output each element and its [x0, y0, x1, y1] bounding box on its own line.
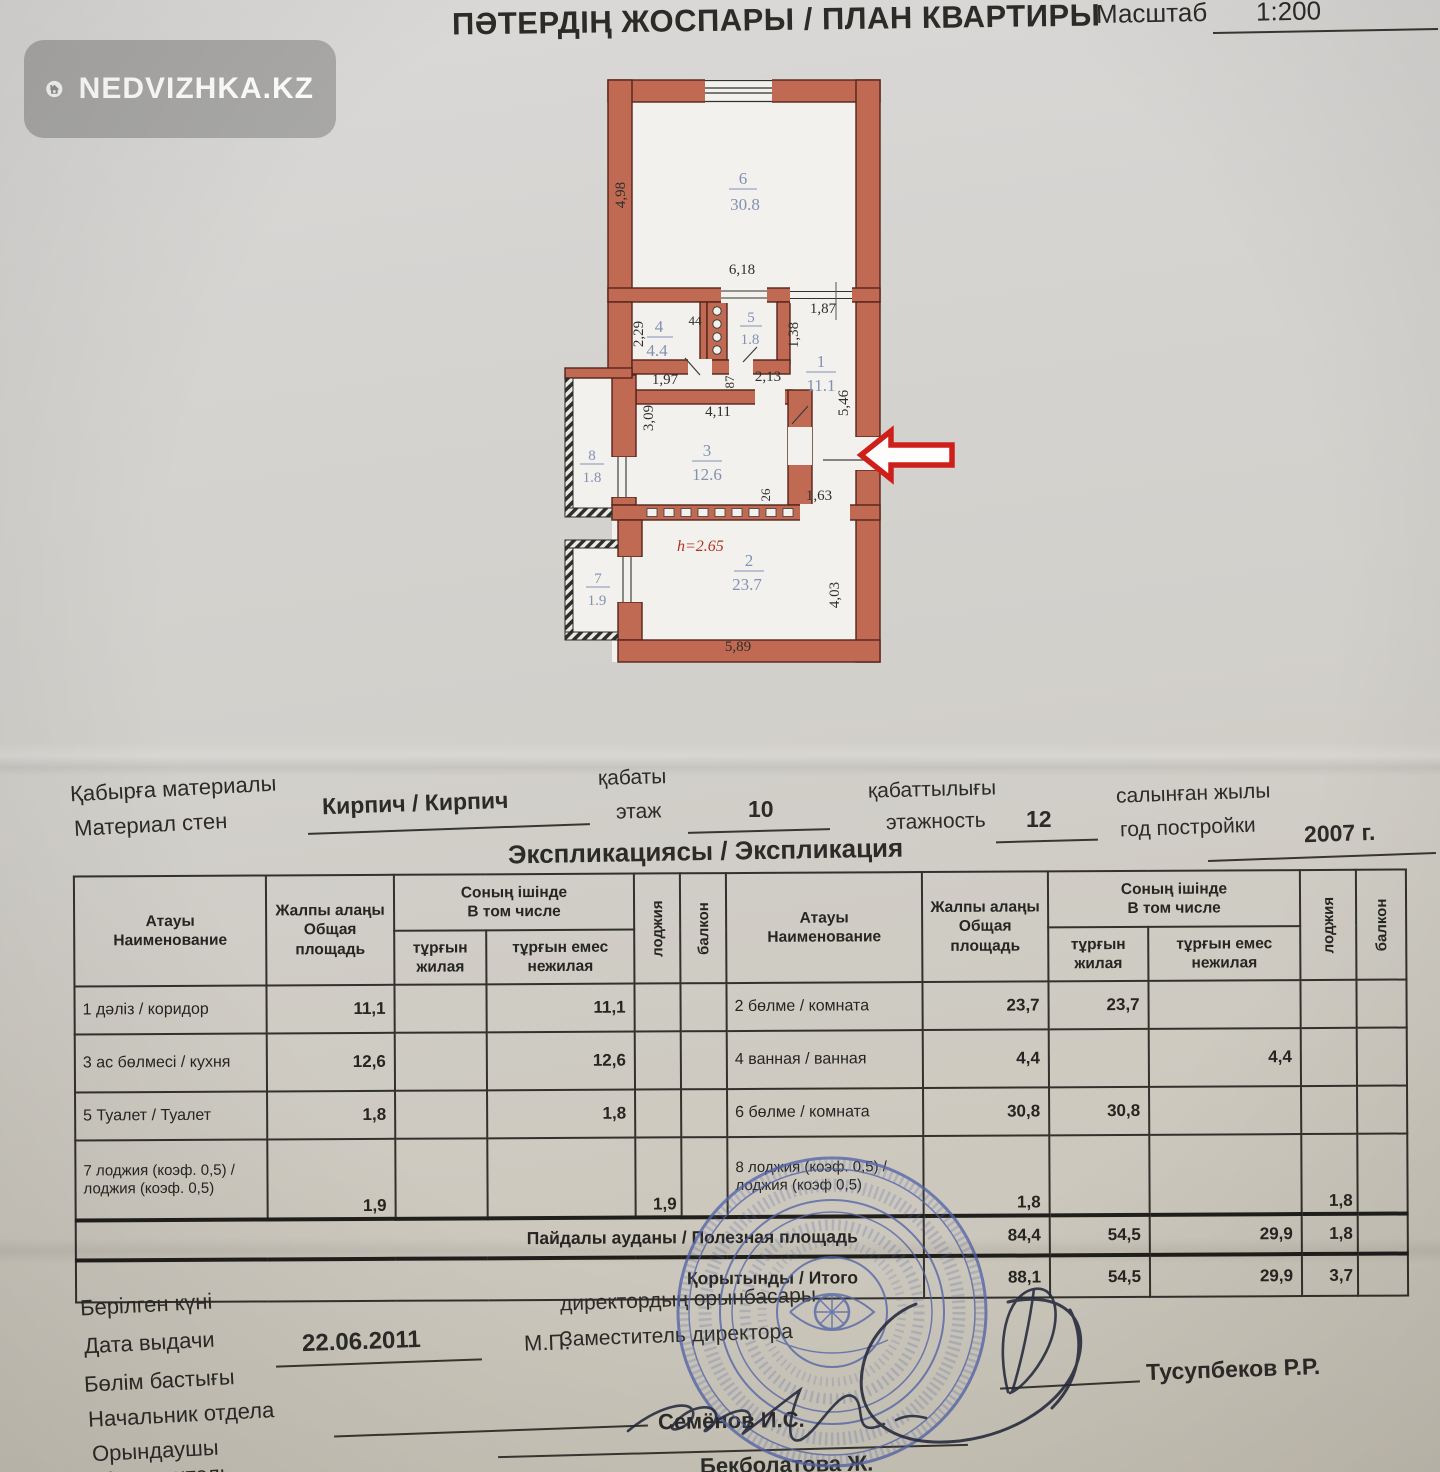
cell-r1-balcony [1357, 1028, 1407, 1086]
header-living-right: тұрғын жилая [1048, 927, 1148, 982]
wall-material-label-kz: Қабырға материалы [69, 771, 276, 808]
glazing-slots [647, 509, 793, 517]
wall-material-underline [308, 823, 590, 835]
year-label-ru: год постройки [1120, 814, 1256, 843]
header-total-kz: Жалпы алаңы [269, 901, 391, 921]
header-balcony-left: балкон [680, 873, 727, 983]
year-value: 2007 г. [1304, 819, 1376, 848]
room6-number: 6 [739, 169, 748, 188]
cell-r2-nonliving [1149, 1086, 1301, 1135]
cell-l0-name: 1 дәліз / коридор [74, 985, 266, 1034]
summary-total-nonliving: 29,9 [1150, 1254, 1302, 1297]
room1-area: 11.1 [806, 376, 835, 395]
cell-l3-nonliving [487, 1138, 635, 1219]
cell-l3-name: 7 лоджия (коэф. 0,5) / лоджия (коэф. 0,5… [75, 1139, 267, 1220]
room2-number: 2 [745, 551, 754, 570]
house-icon [46, 56, 63, 122]
summary-total-balcony [1358, 1254, 1408, 1296]
floor-value: 10 [748, 796, 774, 823]
cell-l1-living [395, 1032, 487, 1090]
header-total-kz: Жалпы алаңы [925, 897, 1045, 917]
head-name: Семёнов И.С. [658, 1407, 805, 1436]
header-incl-kz: Соның ішінде [1051, 879, 1297, 900]
issued-underline [276, 1358, 482, 1367]
summary-useful-loggia: 1,8 [1302, 1214, 1358, 1254]
cell-r0-nonliving [1148, 980, 1300, 1029]
summary-total-loggia: 3,7 [1302, 1254, 1358, 1296]
dim-618: 6,18 [729, 262, 755, 278]
room7-number: 7 [594, 571, 602, 587]
header-name-kz: Атауы [77, 911, 263, 931]
room2-area: 23.7 [732, 575, 762, 594]
year-label-kz: салынған жылы [1116, 779, 1271, 808]
dim-187: 1,87 [810, 301, 837, 317]
header-name-right: Атауы Наименование [726, 872, 923, 983]
cell-l2-balcony [681, 1089, 727, 1137]
summary-row-useful: Пайдалы ауданы / Полезная площадь 84,4 5… [76, 1214, 1408, 1261]
dim-87: 87 [722, 375, 737, 389]
room5-area: 1.8 [741, 332, 760, 348]
cell-r3-living [1049, 1135, 1149, 1216]
header-incl-left: Соның ішінде В том числе [394, 874, 634, 931]
room3-area: 12.6 [692, 465, 722, 484]
header-living-ru: жилая [1051, 954, 1145, 974]
header-total-ru: Общая площадь [925, 917, 1045, 956]
cell-l0-nonliving: 11,1 [486, 984, 634, 1033]
stamp-emblem-icon [815, 1295, 849, 1329]
summary-useful-living: 54,5 [1050, 1215, 1150, 1256]
page-title: ПӘТЕРДІҢ ЖОСПАРЫ / ПЛАН КВАРТИРЫ [452, 0, 1101, 43]
floor-underline [688, 828, 830, 834]
header-nonliving-ru: нежилая [489, 957, 631, 977]
header-loggia-right: лоджия [1300, 870, 1357, 980]
deputy-underline [1000, 1380, 1140, 1389]
cell-r3-loggia: 1,8 [1301, 1134, 1357, 1214]
cell-r3-name: 8 лоджия (коэф. 0,5) / лоджия (коэф 0,5) [727, 1136, 923, 1217]
dim-411: 4,11 [705, 404, 731, 420]
dim-589: 5,89 [725, 639, 751, 655]
cell-r1-total: 4,4 [923, 1029, 1049, 1088]
floors-total-label-kz: қабаттылығы [868, 776, 997, 803]
table-row: 7 лоджия (коэф. 0,5) / лоджия (коэф. 0,5… [75, 1134, 1407, 1221]
floor-plan: 6,18 44 1,97 2,13 1,87 4,11 1,63 5,89 4,… [555, 62, 955, 682]
cell-l2-name: 5 Туалет / Туалет [75, 1091, 267, 1140]
cell-r3-balcony [1357, 1134, 1407, 1214]
executor-name: Бекболатова Ж. [700, 1450, 874, 1472]
cell-r2-balcony [1357, 1086, 1407, 1134]
header-loggia-label: лоджия [1320, 897, 1337, 954]
cell-l3-balcony [681, 1137, 727, 1217]
header-balcony-label: балкон [695, 902, 712, 955]
header-name-ru: Наименование [77, 930, 263, 950]
dim-44: 44 [689, 313, 703, 328]
header-nonliving-kz: тұрғын емес [489, 937, 631, 957]
cell-r1-nonliving: 4,4 [1149, 1028, 1301, 1087]
room4-number: 4 [655, 317, 664, 336]
room1-number: 1 [817, 352, 826, 371]
signature-over-stamp [861, 1299, 1081, 1442]
dim-229: 2,29 [631, 321, 647, 347]
room6-area: 30.8 [730, 195, 760, 214]
scale-underline [1213, 28, 1438, 34]
cell-r1-name: 4 ванная / ванная [727, 1030, 923, 1089]
wall-material-value: Кирпич / Кирпич [322, 787, 509, 820]
issued-label-kz: Берілген күні [79, 1289, 213, 1322]
cell-l3-total: 1,9 [267, 1139, 395, 1220]
header-incl-ru: В том числе [397, 902, 631, 923]
header-balcony-right: балкон [1356, 870, 1407, 980]
cell-r3-total: 1,8 [923, 1135, 1049, 1216]
room8-number: 8 [588, 448, 596, 464]
summary-useful-balcony [1358, 1214, 1408, 1254]
header-nonliving-kz: тұрғын емес [1151, 934, 1297, 954]
cell-r1-living [1049, 1029, 1149, 1088]
dim-309: 3,09 [641, 405, 657, 431]
dim-26: 26 [758, 488, 773, 502]
head-label-kz: Бөлім бастығы [83, 1364, 235, 1398]
scale-value: 1:200 [1256, 0, 1322, 28]
summary-useful-nonliving: 29,9 [1150, 1214, 1302, 1255]
cell-l1-loggia [635, 1031, 681, 1089]
cell-l0-living [394, 984, 486, 1032]
explication-table: Атауы Наименование Жалпы алаңы Общая пло… [73, 869, 1409, 1304]
floors-total-value: 12 [1026, 806, 1052, 833]
dim-138: 1,38 [786, 322, 802, 348]
issued-date: 22.06.2011 [302, 1326, 422, 1358]
floor-label-kz: қабаты [598, 765, 667, 791]
table-row: 3 ас бөлмесі / кухня 12,6 12,6 4 ванная … [75, 1028, 1407, 1093]
header-incl-right: Соның ішінде В том числе [1048, 870, 1300, 927]
watermark-text: NEDVIZHKA.KZ [79, 72, 314, 106]
year-underline [1208, 852, 1436, 862]
cell-r0-balcony [1356, 980, 1406, 1028]
room5-number: 5 [747, 310, 755, 326]
table-row: 5 Туалет / Туалет 1,8 1,8 6 бөлме / комн… [75, 1086, 1407, 1141]
summary-total-total: 88,1 [924, 1255, 1050, 1298]
floors-total-underline [996, 839, 1098, 844]
header-living-kz: тұрғын [1051, 935, 1145, 955]
header-total-left: Жалпы алаңы Общая площадь [266, 875, 395, 986]
cell-r2-total: 30,8 [923, 1087, 1049, 1136]
cell-r2-living: 30,8 [1049, 1087, 1149, 1136]
cell-r0-loggia [1300, 980, 1356, 1028]
floors-total-label-ru: этажность [886, 809, 986, 836]
summary-useful-total: 84,4 [924, 1215, 1050, 1256]
cell-l3-living [395, 1138, 487, 1218]
explication-title: Экспликациясы / Экспликация [508, 833, 904, 871]
cell-l1-nonliving: 12,6 [487, 1032, 635, 1091]
cell-l3-loggia: 1,9 [635, 1137, 681, 1217]
floor-label-ru: этаж [616, 799, 662, 824]
header-total-right: Жалпы алаңы Общая площадь [922, 871, 1049, 982]
summary-total-living: 54,5 [1050, 1255, 1150, 1298]
signature-deputy [1003, 1289, 1056, 1393]
room4-area: 4.4 [646, 341, 668, 360]
room8-area: 1.8 [583, 470, 602, 486]
table-row: 1 дәліз / коридор 11,1 11,1 2 бөлме / ко… [74, 980, 1406, 1035]
cell-l2-total: 1,8 [267, 1091, 395, 1140]
cell-l2-nonliving: 1,8 [487, 1090, 635, 1139]
cell-r2-loggia [1301, 1086, 1357, 1134]
dim-546: 5,46 [836, 389, 852, 416]
dim-498: 4,98 [613, 182, 629, 208]
cell-l2-living [395, 1090, 487, 1138]
dim-213: 2,13 [755, 369, 781, 385]
room7-area: 1.9 [588, 593, 607, 609]
dim-163: 1,63 [806, 488, 832, 504]
cell-r3-nonliving [1149, 1134, 1301, 1215]
cell-r0-total: 23,7 [922, 981, 1048, 1030]
deputy-name: Тусупбеков Р.Р. [1146, 1353, 1321, 1386]
header-balcony-label: балкон [1373, 898, 1390, 951]
head-label-ru: Начальник отдела [87, 1397, 274, 1433]
header-name-ru: Наименование [729, 927, 919, 947]
room3-number: 3 [703, 441, 712, 460]
issued-label-ru: Дата выдачи [83, 1327, 215, 1360]
cell-r0-living: 23,7 [1048, 981, 1148, 1030]
cell-l2-loggia [635, 1089, 681, 1137]
dim-197: 1,97 [652, 372, 679, 388]
header-incl-kz: Соның ішінде [397, 882, 631, 903]
cell-l0-total: 11,1 [266, 985, 394, 1034]
header-nonliving-left: тұрғын емес нежилая [486, 930, 634, 985]
deputy-label-ru: Заместитель директора [560, 1320, 794, 1352]
summary-useful-label: Пайдалы ауданы / Полезная площадь [76, 1216, 924, 1260]
dim-403: 4,03 [827, 582, 843, 608]
cell-l1-balcony [681, 1031, 727, 1089]
cell-r0-name: 2 бөлме / комната [726, 982, 922, 1031]
header-loggia-label: лоджия [649, 900, 666, 957]
cell-l0-loggia [634, 983, 680, 1031]
header-name-left: Атауы Наименование [74, 875, 267, 986]
header-total-ru: Общая площадь [269, 920, 391, 959]
cell-r2-name: 6 бөлме / комната [727, 1088, 923, 1137]
header-living-ru: жилая [397, 957, 483, 977]
wall-material-label-ru: Материал стен [73, 808, 227, 842]
header-loggia-left: лоджия [634, 873, 681, 983]
scale-label: Масштаб [1096, 0, 1208, 30]
header-living-kz: тұрғын [397, 938, 483, 958]
cell-r1-loggia [1301, 1028, 1357, 1086]
header-nonliving-ru: нежилая [1151, 953, 1297, 973]
cell-l1-name: 3 ас бөлмесі / кухня [75, 1033, 267, 1092]
document-photo: ПӘТЕРДІҢ ЖОСПАРЫ / ПЛАН КВАРТИРЫ Масштаб… [0, 0, 1440, 1472]
cell-l0-balcony [680, 983, 726, 1031]
header-living-left: тұрғын жилая [394, 930, 486, 984]
header-name-kz: Атауы [729, 908, 919, 928]
header-incl-ru: В том числе [1051, 898, 1297, 919]
watermark-badge: NEDVIZHKA.KZ [24, 40, 336, 138]
cell-l1-total: 12,6 [267, 1033, 395, 1092]
height-note: h=2.65 [677, 538, 724, 555]
header-nonliving-right: тұрғын емес нежилая [1148, 926, 1300, 981]
head-underline [334, 1425, 648, 1438]
